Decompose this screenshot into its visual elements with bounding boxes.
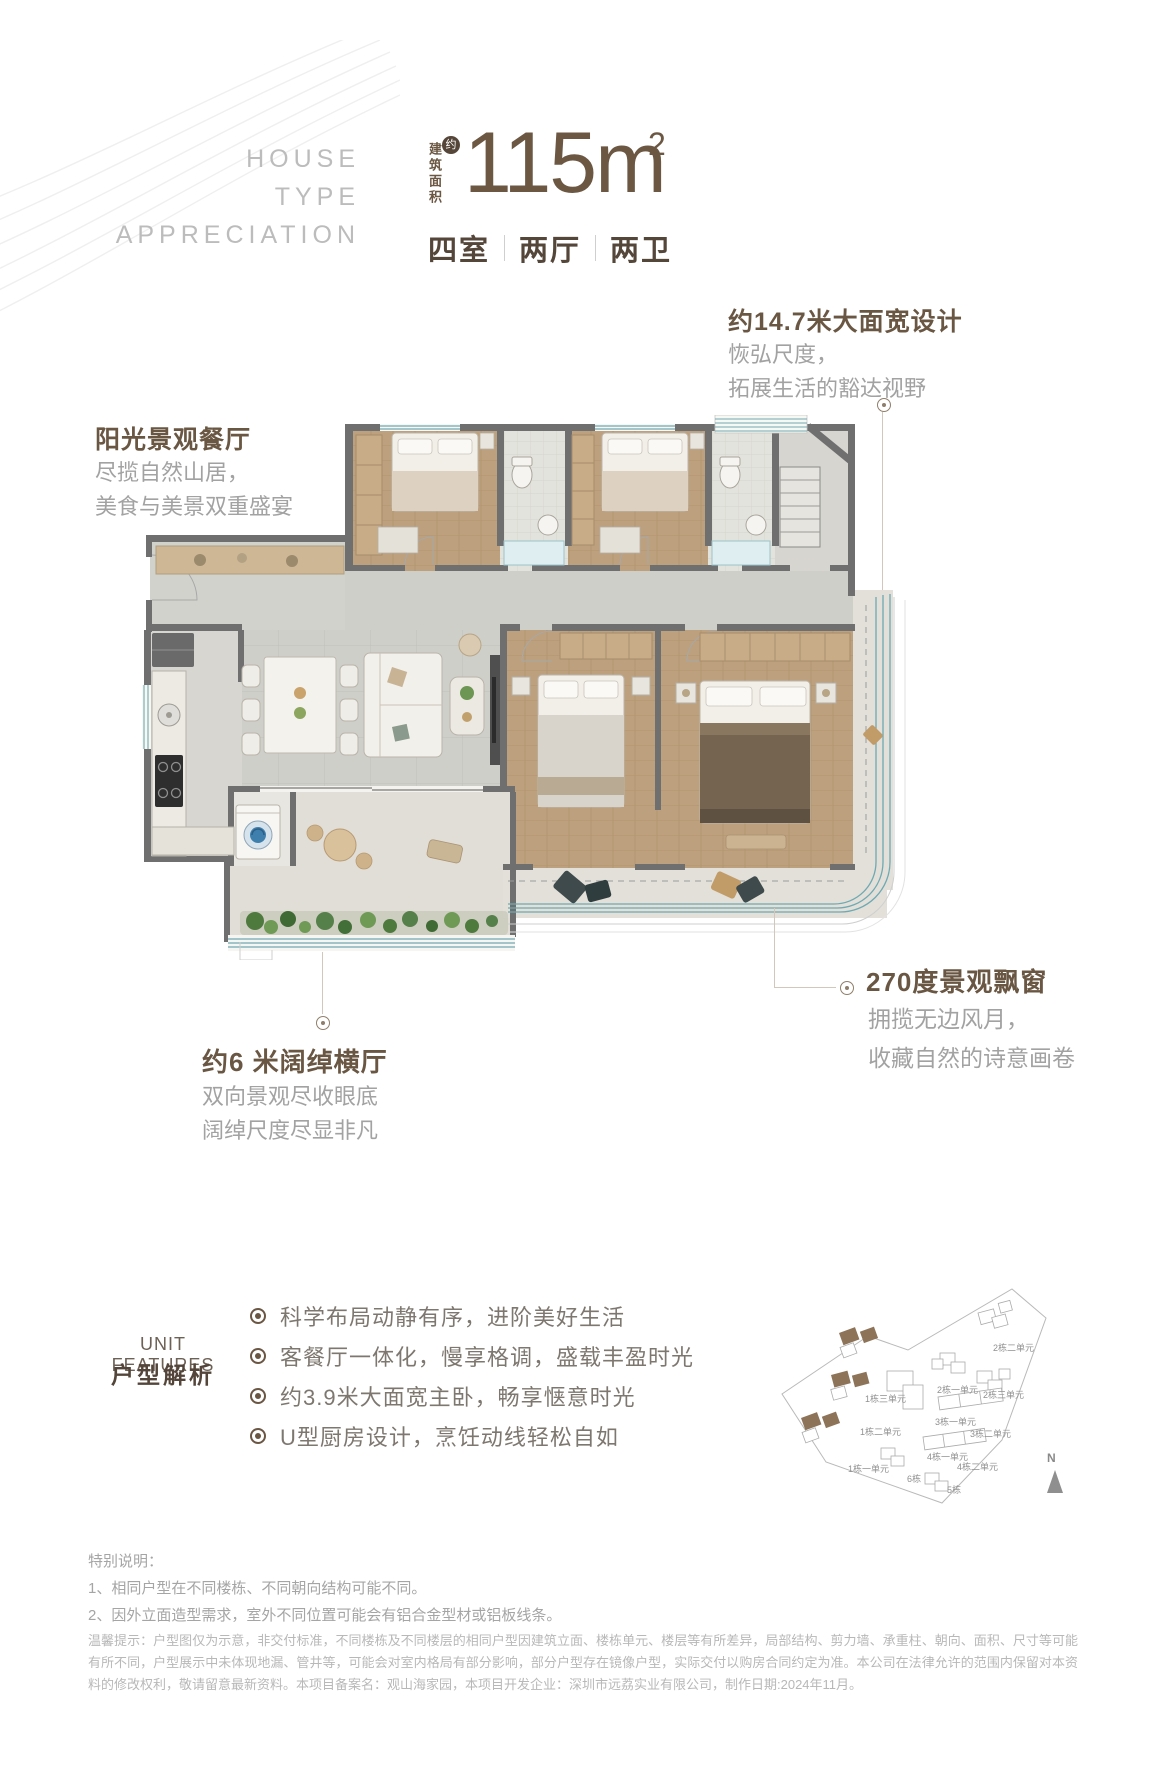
legal-disclaimer: 温馨提示：户型图仅为示意，非交付标准，不同楼栋及不同楼层的相同户型因建筑立面、楼…: [88, 1630, 1078, 1696]
special-note-item: 2、因外立面造型需求，室外不同位置可能会有铝合金型材或铝板线条。: [88, 1602, 561, 1629]
annotation-facade-title: 约14.7米大面宽设计: [728, 302, 963, 338]
annotation-line: 拥揽无边风月，: [868, 1000, 1075, 1039]
divider: [595, 235, 596, 261]
feature-item: 客餐厅一体化，慢享格调，盛载丰盈时光: [250, 1340, 694, 1372]
approx-badge: 约: [442, 136, 460, 154]
divider: [504, 235, 505, 261]
special-notes-title: 特别说明：: [88, 1548, 163, 1575]
annotation-hall-title: 约6 米阔绰横厅: [202, 1042, 388, 1079]
watermark-line: APPRECIATION: [70, 216, 360, 254]
area-exponent: 2: [648, 128, 666, 160]
annotation-bay-desc: 拥揽无边风月， 收藏自然的诗意画卷: [868, 1000, 1075, 1078]
building-label: 1栋一单元: [848, 1462, 889, 1475]
area-label: 建筑面积: [425, 142, 444, 214]
feature-item: 约3.9米大面宽主卧，畅享惬意时光: [250, 1380, 636, 1412]
layout-summary: 四室 两厅 两卫: [428, 227, 672, 269]
annotation-bay-title: 270度景观飘窗: [866, 962, 1047, 999]
annotation-hall-desc: 双向景观尽收眼底 阔绰尺度尽显非凡: [202, 1080, 378, 1148]
north-label: N: [1047, 1451, 1056, 1465]
bullet-ring-icon: [250, 1388, 266, 1404]
rooms-count: 四室: [428, 227, 490, 269]
site-map: 2栋二单元 2栋一单元 2栋三单元 1栋三单元 3栋一单元 3栋二单元 1栋二单…: [735, 1285, 1150, 1515]
building-label: 2栋二单元: [993, 1341, 1034, 1354]
feature-item: 科学布局动静有序，进阶美好生活: [250, 1300, 625, 1332]
house-type-poster: HOUSE TYPE APPRECIATION 建筑面积 约 115m 2 四室…: [0, 0, 1150, 1777]
watermark-line: TYPE: [70, 178, 360, 216]
halls-count: 两厅: [519, 227, 581, 269]
building-label: 5栋: [947, 1483, 961, 1496]
feature-item: U型厨房设计，烹饪动线轻松自如: [250, 1420, 619, 1452]
building-label: 3栋二单元: [970, 1427, 1011, 1440]
connector-dot-icon: [840, 981, 854, 995]
feature-text: U型厨房设计，烹饪动线轻松自如: [280, 1420, 619, 1452]
annotation-line: 收藏自然的诗意画卷: [868, 1039, 1075, 1078]
annotation-line: 双向景观尽收眼底: [202, 1080, 378, 1114]
building-label: 6栋: [907, 1472, 921, 1485]
bullet-ring-icon: [250, 1428, 266, 1444]
feature-text: 科学布局动静有序，进阶美好生活: [280, 1300, 625, 1332]
connector-line: [774, 987, 836, 988]
annotation-line: 恢弘尺度，: [728, 338, 926, 372]
building-label: 1栋二单元: [860, 1425, 901, 1438]
watermark-line: HOUSE: [70, 140, 360, 178]
annotation-line: 拓展生活的豁达视野: [728, 372, 926, 406]
bullet-ring-icon: [250, 1308, 266, 1324]
annotation-facade-desc: 恢弘尺度， 拓展生活的豁达视野: [728, 338, 926, 406]
connector-dot-icon: [316, 1016, 330, 1030]
north-arrow-icon: [1047, 1470, 1063, 1493]
building-label: 2栋三单元: [983, 1388, 1024, 1401]
area-value: 115m: [464, 120, 665, 206]
building-label: 4栋二单元: [957, 1460, 998, 1473]
annotation-line: 阔绰尺度尽显非凡: [202, 1114, 378, 1148]
site-map-drawing: [735, 1285, 1150, 1515]
connector-line: [322, 952, 323, 1014]
building-label: 2栋一单元: [937, 1383, 978, 1396]
baths-count: 两卫: [610, 227, 672, 269]
connector-line: [774, 908, 775, 987]
features-label-zh: 户型解析: [88, 1356, 238, 1390]
feature-text: 客餐厅一体化，慢享格调，盛载丰盈时光: [280, 1340, 694, 1372]
special-note-item: 1、相同户型在不同楼栋、不同朝向结构可能不同。: [88, 1575, 426, 1602]
floor-plan: [140, 415, 930, 960]
building-label: 1栋三单元: [865, 1392, 906, 1405]
watermark-title: HOUSE TYPE APPRECIATION: [70, 140, 360, 254]
connector-dot-icon: [877, 398, 891, 412]
feature-text: 约3.9米大面宽主卧，畅享惬意时光: [280, 1380, 636, 1412]
bullet-ring-icon: [250, 1348, 266, 1364]
